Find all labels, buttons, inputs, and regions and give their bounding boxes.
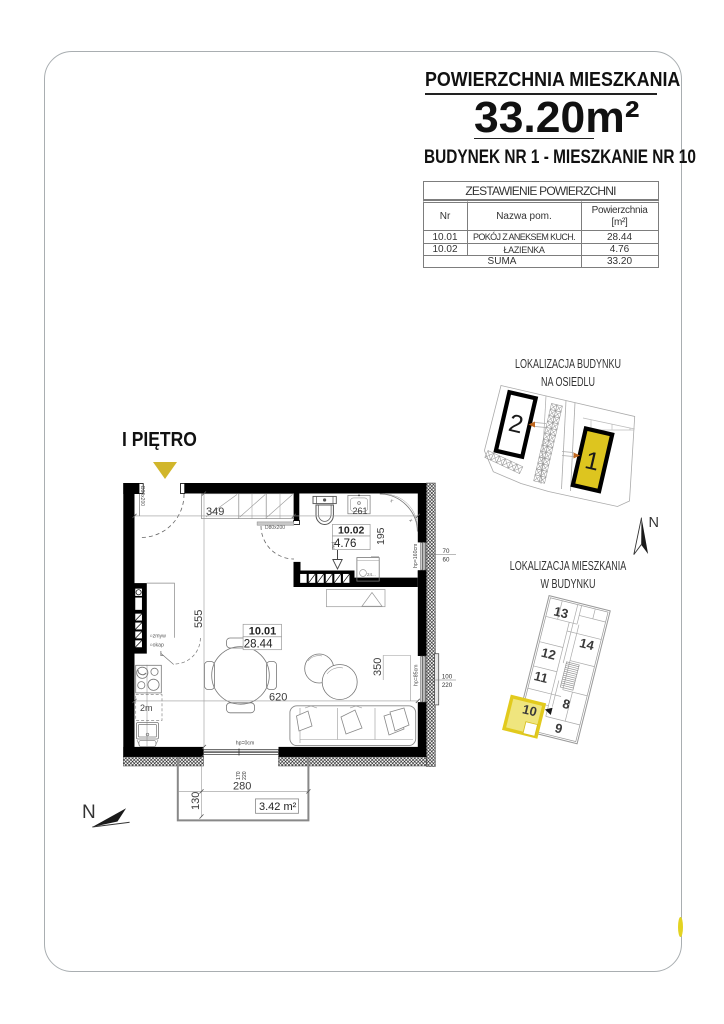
svg-text:○okap: ○okap bbox=[150, 643, 164, 649]
svg-text:3.42 m²: 3.42 m² bbox=[259, 801, 297, 813]
svg-text:130: 130 bbox=[190, 792, 202, 810]
svg-text:N: N bbox=[649, 515, 659, 531]
svg-text:x: x bbox=[389, 498, 395, 505]
svg-text:280: 280 bbox=[233, 781, 251, 793]
svg-text:○zmyw: ○zmyw bbox=[150, 634, 167, 640]
svg-text:D90x200: D90x200 bbox=[139, 486, 145, 506]
svg-text:hp=85cm: hp=85cm bbox=[414, 665, 420, 687]
svg-text:D80x200: D80x200 bbox=[265, 525, 285, 531]
svg-text:x: x bbox=[407, 518, 414, 524]
svg-text:60: 60 bbox=[443, 557, 450, 564]
svg-text:350: 350 bbox=[372, 658, 384, 676]
svg-text:hp=0cm: hp=0cm bbox=[236, 741, 255, 747]
svg-text:100: 100 bbox=[442, 674, 453, 681]
svg-text:hp=160cm: hp=160cm bbox=[413, 544, 419, 568]
svg-text:261: 261 bbox=[353, 506, 368, 516]
svg-text:wej: wej bbox=[331, 542, 336, 549]
svg-text:195: 195 bbox=[375, 527, 387, 545]
svg-text:70: 70 bbox=[443, 548, 450, 555]
svg-text:28.44: 28.44 bbox=[244, 638, 273, 650]
svg-text:220: 220 bbox=[442, 682, 453, 689]
svg-text:4.76: 4.76 bbox=[334, 538, 356, 550]
svg-text:10.02: 10.02 bbox=[338, 525, 364, 537]
svg-text:620: 620 bbox=[269, 692, 287, 704]
svg-text:2m: 2m bbox=[140, 703, 153, 713]
svg-text:24...: 24... bbox=[367, 572, 376, 577]
svg-text:555: 555 bbox=[193, 610, 205, 628]
svg-text:N: N bbox=[82, 802, 96, 823]
svg-text:10.01: 10.01 bbox=[249, 625, 277, 637]
svg-text:349: 349 bbox=[206, 506, 224, 518]
svg-text:220: 220 bbox=[242, 771, 248, 780]
